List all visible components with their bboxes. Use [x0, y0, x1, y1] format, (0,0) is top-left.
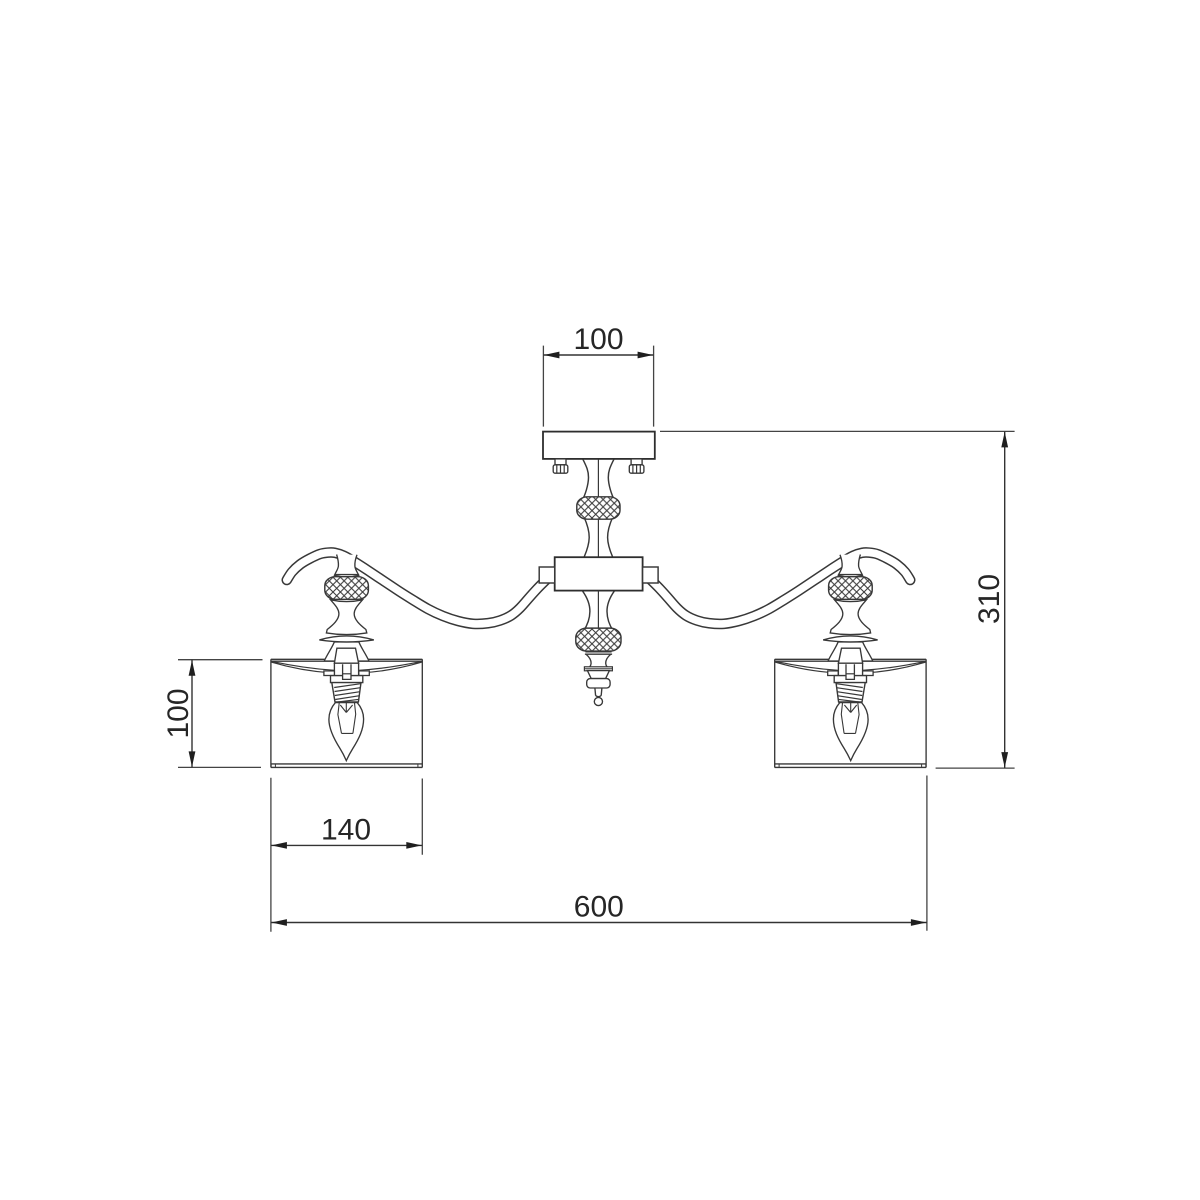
svg-text:600: 600 — [574, 891, 624, 924]
svg-text:100: 100 — [573, 323, 623, 356]
svg-text:310: 310 — [973, 574, 1006, 624]
svg-text:100: 100 — [162, 688, 195, 738]
svg-text:140: 140 — [321, 813, 371, 846]
